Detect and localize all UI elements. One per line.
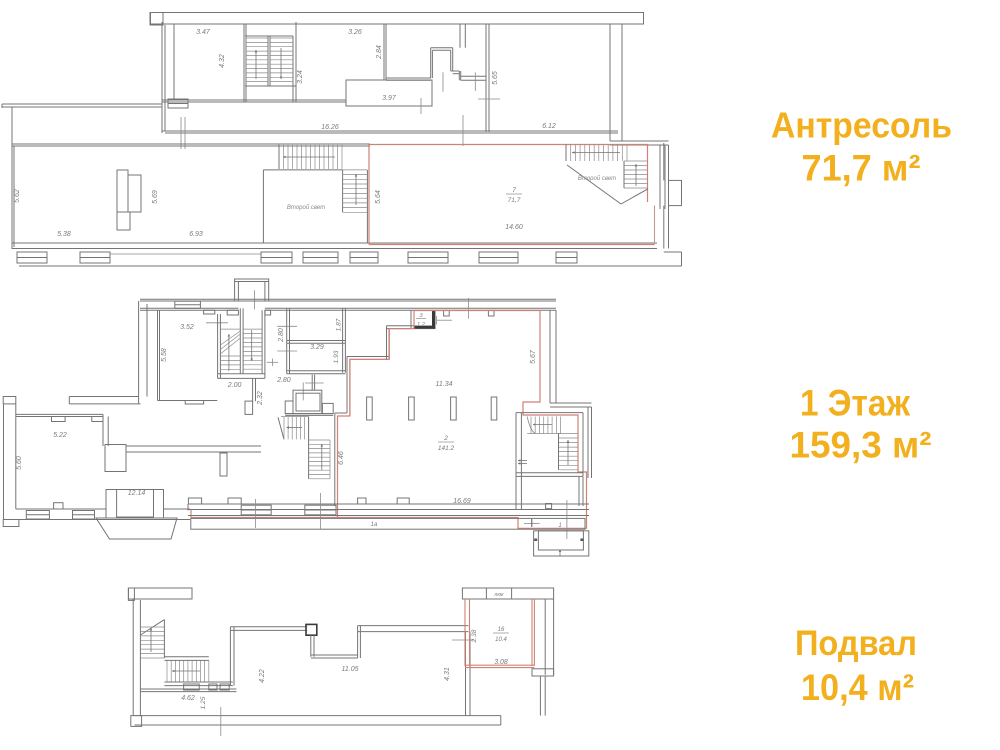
svg-text:2.84: 2.84 xyxy=(376,45,383,60)
svg-text:16.69: 16.69 xyxy=(453,498,471,505)
svg-text:Антресоль: Антресоль xyxy=(771,105,952,146)
svg-text:141.2: 141.2 xyxy=(438,445,455,452)
svg-text:5.67: 5.67 xyxy=(530,349,537,364)
svg-text:Второй свет: Второй свет xyxy=(578,175,616,182)
svg-text:2.00: 2.00 xyxy=(227,382,242,389)
svg-text:71,7: 71,7 xyxy=(508,197,521,204)
svg-text:3.08: 3.08 xyxy=(494,659,508,666)
svg-text:159,3 м²: 159,3 м² xyxy=(790,425,932,466)
svg-text:7: 7 xyxy=(512,187,516,194)
svg-text:3.47: 3.47 xyxy=(196,29,211,36)
svg-text:5.65: 5.65 xyxy=(492,71,499,85)
svg-text:2.38: 2.38 xyxy=(471,629,478,643)
svg-text:5.62: 5.62 xyxy=(14,189,21,203)
svg-text:5.60: 5.60 xyxy=(16,456,23,470)
svg-text:5.69: 5.69 xyxy=(152,190,159,204)
svg-text:10,4 м²: 10,4 м² xyxy=(801,667,914,708)
svg-text:4.31: 4.31 xyxy=(444,667,451,681)
svg-text:11.05: 11.05 xyxy=(342,666,359,673)
svg-text:6.93: 6.93 xyxy=(189,231,203,238)
svg-text:5.22: 5.22 xyxy=(53,432,67,439)
svg-text:1.93: 1.93 xyxy=(333,350,340,363)
svg-text:6.46: 6.46 xyxy=(338,451,345,465)
svg-text:4.32: 4.32 xyxy=(219,54,226,68)
svg-text:16.26: 16.26 xyxy=(321,124,339,131)
svg-text:1.87: 1.87 xyxy=(336,318,343,331)
svg-text:2.32: 2.32 xyxy=(257,391,264,406)
svg-text:4.22: 4.22 xyxy=(259,669,266,683)
svg-text:10.4: 10.4 xyxy=(495,637,507,643)
svg-text:1 Этаж: 1 Этаж xyxy=(800,383,911,424)
svg-text:1: 1 xyxy=(558,523,561,529)
svg-text:Второй свет: Второй свет xyxy=(287,204,325,211)
svg-text:3.26: 3.26 xyxy=(348,29,362,36)
svg-text:12.14: 12.14 xyxy=(128,490,146,497)
svg-text:11.34: 11.34 xyxy=(436,381,453,388)
svg-text:1.2: 1.2 xyxy=(417,322,425,328)
svg-text:2.80: 2.80 xyxy=(278,328,285,343)
svg-text:3.52: 3.52 xyxy=(180,324,194,331)
svg-text:2: 2 xyxy=(443,435,448,442)
svg-text:14.60: 14.60 xyxy=(505,224,523,231)
svg-text:Подвал: Подвал xyxy=(795,624,917,663)
svg-text:4.62: 4.62 xyxy=(181,695,195,702)
svg-text:люк: люк xyxy=(494,592,505,598)
svg-text:5.58: 5.58 xyxy=(161,348,168,362)
svg-text:1a: 1a xyxy=(371,522,378,528)
svg-text:1.25: 1.25 xyxy=(200,696,207,709)
svg-text:5.38: 5.38 xyxy=(57,231,71,238)
svg-text:3.97: 3.97 xyxy=(382,95,397,102)
svg-text:5.64: 5.64 xyxy=(375,190,382,204)
svg-text:71,7 м²: 71,7 м² xyxy=(802,148,921,189)
svg-text:3.24: 3.24 xyxy=(297,70,304,84)
svg-text:3.29: 3.29 xyxy=(310,344,324,351)
svg-text:6.12: 6.12 xyxy=(542,123,556,130)
svg-text:16: 16 xyxy=(498,627,505,633)
svg-text:2.80: 2.80 xyxy=(276,377,291,384)
